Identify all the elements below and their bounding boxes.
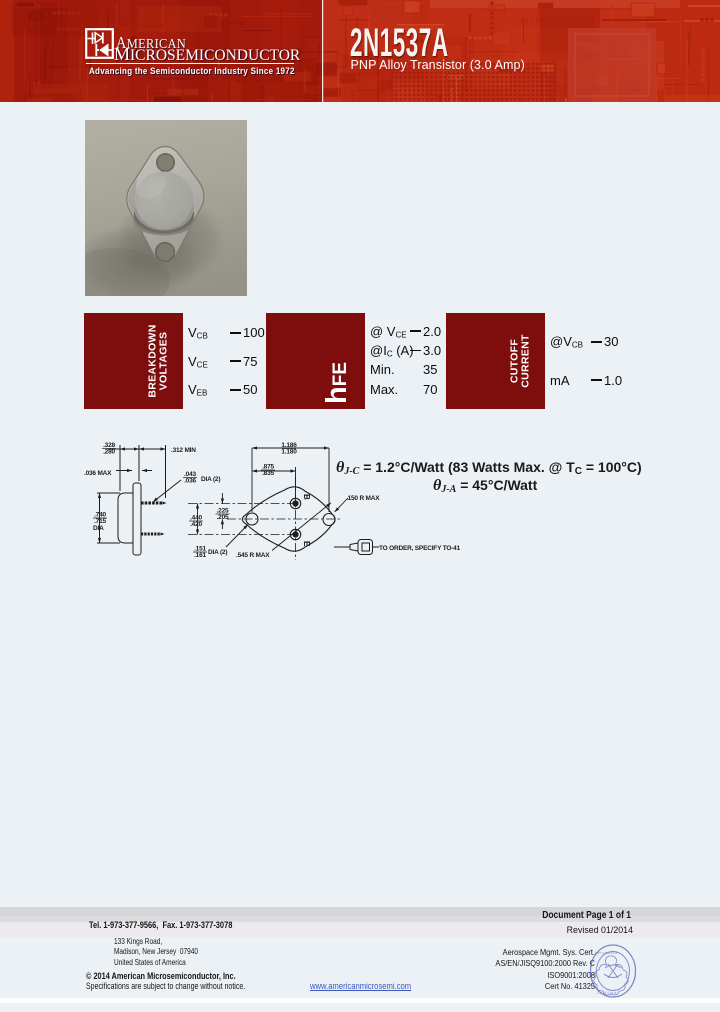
svg-text:DIA (2): DIA (2) [208,549,227,556]
svg-text:DIA (2): DIA (2) [201,476,220,483]
svg-text:C e r t i f i e d: C e r t i f i e d [597,991,616,995]
svg-text:A e r o s p a c e: A e r o s p a c e [595,951,617,955]
svg-text:TO ORDER, SPECIFY TO-41: TO ORDER, SPECIFY TO-41 [379,545,461,552]
svg-text:1.180: 1.180 [281,449,297,456]
svg-text:.280: .280 [103,449,115,456]
svg-text:.036 MAX: .036 MAX [84,470,112,477]
svg-text:.036: .036 [184,478,196,485]
svg-text:.715: .715 [94,518,106,525]
svg-text:.312 MIN: .312 MIN [171,447,196,454]
svg-text:.545 R MAX: .545 R MAX [236,552,270,559]
svg-text:B: B [302,494,311,500]
svg-text:.420: .420 [190,521,202,528]
svg-text:E: E [302,541,311,547]
svg-text:.150 R MAX: .150 R MAX [346,495,380,502]
svg-text:.835: .835 [262,470,274,477]
svg-text:.205: .205 [217,514,229,521]
svg-text:.161: .161 [194,552,206,559]
svg-text:DIA: DIA [93,525,104,532]
